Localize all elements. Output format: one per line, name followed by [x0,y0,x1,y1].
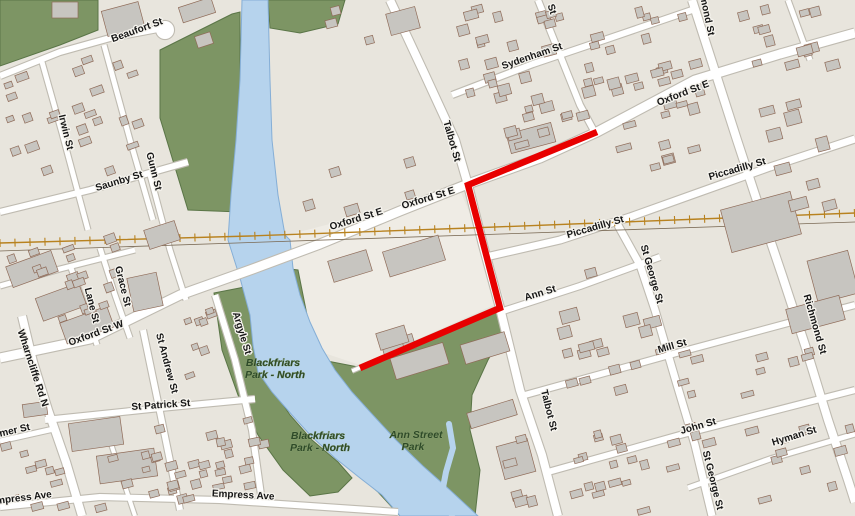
building [224,449,233,459]
building [609,460,618,469]
building [190,479,201,490]
building [222,476,232,484]
map-canvas[interactable]: Beaufort StIrwin StGunn StSaunby StSyden… [0,0,855,516]
park-label-ann-street: Ann Street [388,429,443,441]
park-label-blackfriars: Blackfriars [246,357,300,369]
building [687,102,700,115]
park-label-park-north: Park - North [245,369,305,381]
park-label-park: Park [402,441,426,453]
building [141,451,150,460]
building [244,457,254,465]
building [216,437,226,446]
map-viewport[interactable]: Beaufort StIrwin StGunn StSaunby StSyden… [0,0,855,516]
building [52,2,78,18]
building [827,481,837,491]
building [330,6,341,16]
building [458,59,469,71]
park-label-park-north: Park - North [290,442,350,454]
building [507,40,519,52]
building [845,424,855,434]
building [583,78,593,87]
building [364,35,374,45]
building [760,4,770,15]
building [584,482,594,491]
park-label-blackfriars: Blackfriars [291,430,345,442]
building [678,12,688,21]
building [199,470,208,478]
building [594,430,603,439]
building [488,79,498,88]
building [687,390,696,398]
building [519,71,532,84]
building [127,272,163,311]
building [465,88,475,98]
building [605,45,615,54]
